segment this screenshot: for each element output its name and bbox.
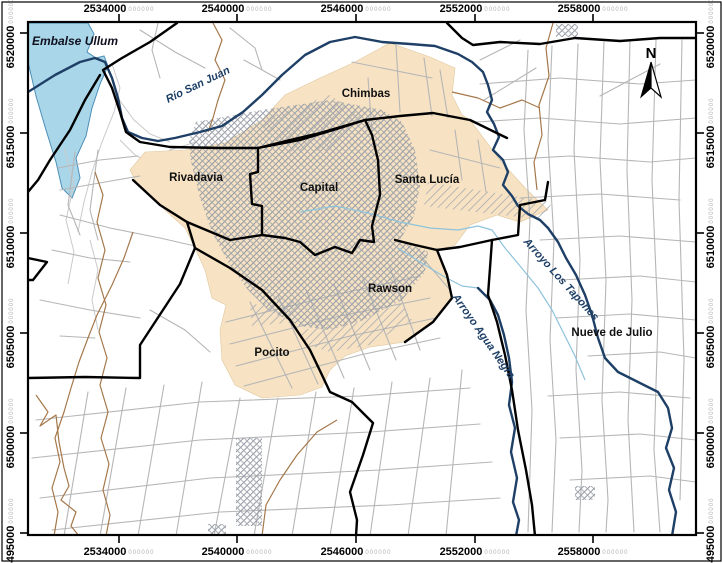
grid-label-left-2: 6510000000000 xyxy=(5,198,17,269)
grid-label-bottom-0: 2534000000000 xyxy=(84,546,155,558)
label-embalse-ullum: Embalse Ullum xyxy=(32,34,118,48)
lake-embalse-ullum xyxy=(28,23,108,198)
north-arrow-icon xyxy=(641,62,651,97)
label-nueve-de-julio: Nueve de Julio xyxy=(571,327,652,339)
grid-label-top-1: 2540000000000 xyxy=(202,3,273,15)
grid-label-left-1: 6515000000000 xyxy=(5,98,17,169)
grid-label-bottom-1: 2540000000000 xyxy=(202,546,273,558)
label-chimbas: Chimbas xyxy=(342,88,391,100)
north-label: N xyxy=(646,45,657,62)
grid-label-right-3: 6505000000000 xyxy=(705,298,717,369)
grid-label-top-4: 2558000000000 xyxy=(558,3,629,15)
map-canvas: N Embalse Ullum Río San Juan Arroyo Los … xyxy=(0,0,723,563)
label-rio-san-juan: Río San Juan xyxy=(164,64,232,105)
grid-label-bottom-2: 2546000000000 xyxy=(321,546,392,558)
grid-label-right-4: 6500000000000 xyxy=(705,398,717,469)
label-rawson: Rawson xyxy=(368,283,412,295)
label-arroyo-agua-negra: Arroyo Agua Negra xyxy=(449,291,517,381)
label-pocito: Pocito xyxy=(254,347,289,359)
north-arrow: N xyxy=(641,45,661,97)
label-capital: Capital xyxy=(300,182,338,194)
grid-label-bottom-3: 2552000000000 xyxy=(440,546,511,558)
grid-label-top-3: 2552000000000 xyxy=(440,3,511,15)
grid-label-right-2: 6510000000000 xyxy=(705,198,717,269)
grid-label-right-1: 6515000000000 xyxy=(705,98,717,169)
map-figure: N Embalse Ullum Río San Juan Arroyo Los … xyxy=(0,0,723,563)
label-santa-lucia: Santa Lucía xyxy=(395,174,460,186)
grid-label-right-0: 6520000000000 xyxy=(705,0,717,68)
label-rivadavia: Rivadavia xyxy=(169,172,223,184)
grid-label-bottom-4: 2558000000000 xyxy=(558,546,629,558)
grid-label-left-0: 6520000000000 xyxy=(5,0,17,68)
grid-label-top-0: 2534000000000 xyxy=(84,3,155,15)
grid-label-right-5: 6495000000000 xyxy=(705,498,717,563)
grid-label-left-3: 6505000000000 xyxy=(5,298,17,369)
grid-label-left-4: 6500000000000 xyxy=(5,398,17,469)
north-arrow-icon-white-half xyxy=(651,62,661,97)
grid-label-top-2: 2546000000000 xyxy=(321,3,392,15)
grid-label-left-5: 6495000000000 xyxy=(5,498,17,563)
